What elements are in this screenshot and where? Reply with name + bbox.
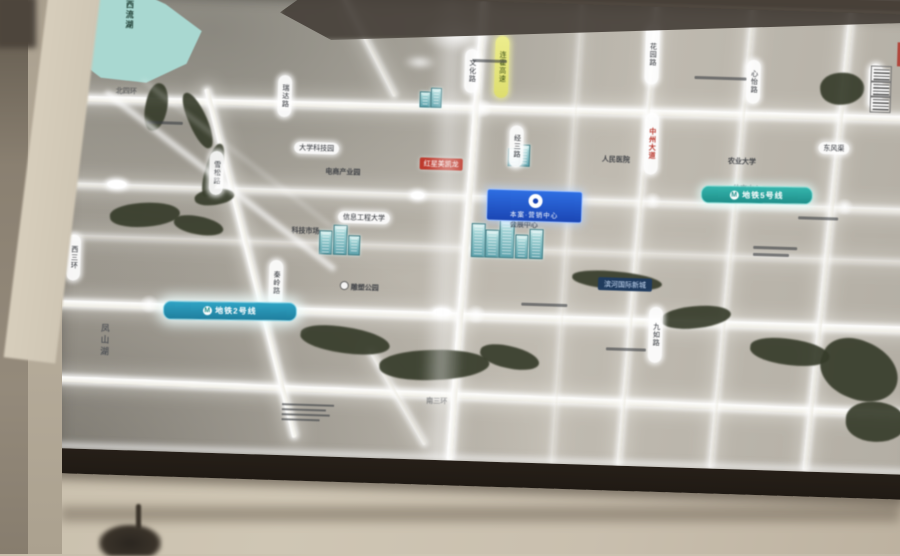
road-label-vertical: 秦岭路 bbox=[268, 260, 283, 306]
road-label-vertical: 花园路 bbox=[644, 24, 660, 84]
map-display-panel: 西流湖 bbox=[35, 0, 900, 500]
poi-label-navy: 滨河国际新城 bbox=[598, 277, 652, 292]
poi-text: 电商产业园 bbox=[325, 168, 360, 176]
park-logo-icon bbox=[340, 281, 349, 290]
park bbox=[299, 321, 392, 359]
metro-line-text: 地铁5号线 bbox=[742, 189, 784, 201]
poi-label: 电商产业园 bbox=[325, 166, 360, 177]
building-icon bbox=[529, 229, 544, 259]
poi-label: 东风渠 bbox=[818, 142, 849, 155]
light-glint bbox=[139, 295, 160, 314]
highway-label-vertical: 连霍高速 bbox=[494, 36, 510, 98]
park-label: 雕塑公园 bbox=[340, 281, 379, 293]
lake-label: 西流湖 bbox=[124, 0, 136, 30]
poi-label: 信息工程大学 bbox=[338, 211, 390, 225]
road-label: 北四环 bbox=[116, 86, 137, 97]
building-icon bbox=[485, 229, 500, 257]
glare-blob bbox=[403, 55, 437, 70]
building-icon bbox=[319, 230, 333, 254]
road-label-text: 九如路 bbox=[652, 323, 660, 347]
blurred-text-line bbox=[694, 76, 746, 80]
road-label-vertical: 经三路 bbox=[509, 125, 524, 167]
project-marker-title: 本案·营销中心 bbox=[487, 208, 581, 221]
poi-text: 滨河国际新城 bbox=[604, 281, 646, 289]
park bbox=[845, 401, 900, 443]
decor-object bbox=[98, 524, 162, 556]
frame-drop-shadow bbox=[60, 506, 900, 522]
road-label-text: 中州大道 bbox=[648, 128, 656, 160]
metro-logo-icon: M bbox=[730, 190, 739, 199]
road-label-text: 秦岭路 bbox=[272, 271, 280, 295]
metro-station-icon bbox=[411, 191, 425, 199]
park bbox=[811, 328, 900, 412]
road-label-text: 心怡路 bbox=[750, 70, 758, 94]
building-icon bbox=[515, 234, 529, 258]
poi-text: 信息工程大学 bbox=[343, 214, 385, 222]
photo-scene: { "scene": { "panel": "backlit-area-map-… bbox=[0, 0, 900, 554]
poi-text: 农业大学 bbox=[728, 158, 756, 166]
road-label-vertical: 瑞达路 bbox=[277, 75, 292, 117]
road-label-vertical: 九如路 bbox=[648, 307, 664, 363]
metro-station-icon bbox=[107, 180, 127, 190]
poi-label: 人民医院 bbox=[602, 154, 630, 165]
river bbox=[172, 212, 224, 238]
road-label-vertical: 心怡路 bbox=[746, 60, 761, 104]
highway-label-text: 连霍高速 bbox=[498, 51, 506, 83]
map-surface: 西流湖 bbox=[47, 0, 900, 475]
metro-line-2-label: M 地铁2号线 bbox=[163, 301, 297, 322]
wall-corner-shadow bbox=[0, 0, 36, 48]
river bbox=[109, 200, 181, 229]
road-label-text: 经三路 bbox=[513, 134, 521, 158]
road-horizontal bbox=[49, 375, 900, 417]
park bbox=[819, 70, 866, 107]
project-marker: 本案·营销中心 bbox=[486, 188, 583, 223]
metro-line-5-label: M 地铁5号线 bbox=[701, 185, 813, 205]
light-glint bbox=[471, 99, 494, 118]
road-label-vertical-red: 中州大道 bbox=[643, 112, 659, 174]
light-glint bbox=[465, 305, 488, 324]
blurred-text-line bbox=[798, 216, 838, 220]
project-logo-icon bbox=[528, 194, 542, 208]
poi-text: 东风渠 bbox=[823, 145, 844, 153]
road-label-text: 西三环 bbox=[70, 245, 78, 269]
map-content: 西流湖 bbox=[47, 0, 900, 475]
legend-box bbox=[870, 95, 892, 113]
poi-text: 雕塑公园 bbox=[351, 284, 379, 292]
blurred-text-line bbox=[753, 246, 797, 250]
poi-text: 北四环 bbox=[116, 88, 137, 96]
building-icon bbox=[348, 235, 361, 255]
district-label: 凤山湖 bbox=[98, 323, 111, 358]
poi-text: 人民医院 bbox=[602, 156, 630, 164]
poi-text: 大学科技园 bbox=[299, 145, 334, 153]
building-icon bbox=[471, 223, 486, 257]
light-glint bbox=[834, 198, 854, 215]
park bbox=[478, 340, 541, 374]
poi-text: 会展中心 bbox=[510, 221, 538, 229]
blurred-text-line bbox=[521, 303, 567, 307]
road-label-text: 瑞达路 bbox=[281, 84, 289, 108]
light-glint bbox=[642, 192, 662, 209]
panel-bottom-glow bbox=[47, 438, 900, 475]
poi-label: 农业大学 bbox=[728, 156, 756, 167]
poi-label: 大学科技园 bbox=[294, 141, 339, 154]
metro-logo-icon: M bbox=[203, 306, 212, 315]
metro-line-text: 地铁2号线 bbox=[215, 305, 257, 317]
road-label-text: 花园路 bbox=[649, 43, 657, 67]
building-icon bbox=[333, 225, 348, 255]
legend-line bbox=[282, 403, 334, 407]
road-vertical bbox=[550, 4, 583, 463]
